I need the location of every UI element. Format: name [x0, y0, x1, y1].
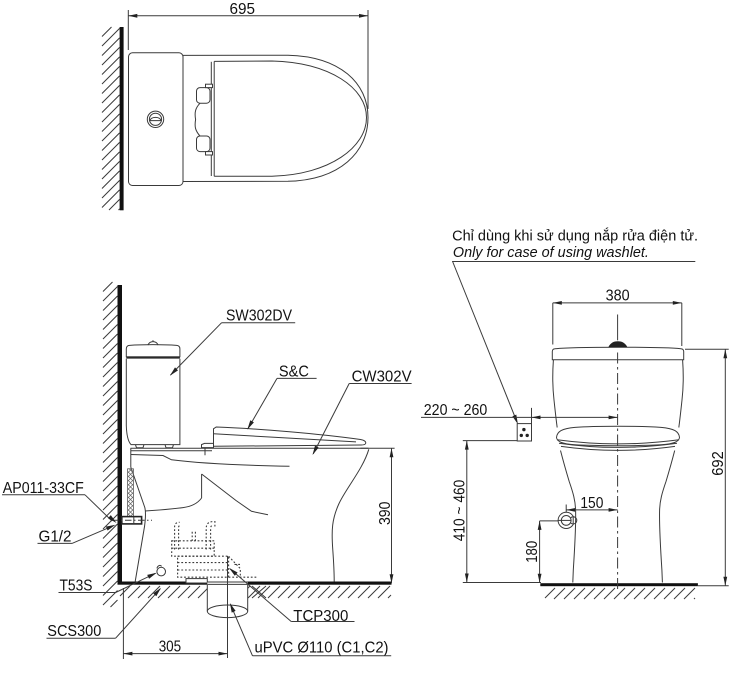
svg-text:T53S: T53S [60, 578, 93, 595]
svg-text:G1/2: G1/2 [39, 528, 72, 545]
svg-text:692: 692 [710, 451, 727, 476]
svg-text:695: 695 [230, 1, 256, 18]
svg-text:AP011-33CF: AP011-33CF [3, 480, 84, 497]
svg-text:CW302V: CW302V [352, 369, 412, 386]
svg-text:380: 380 [606, 288, 630, 305]
svg-text:180: 180 [524, 541, 541, 563]
svg-text:Chỉ dùng khi sử dụng nắp rửa đ: Chỉ dùng khi sử dụng nắp rửa điện tử. [452, 228, 698, 245]
svg-text:TCP300: TCP300 [293, 608, 348, 625]
svg-text:Only for case of using washlet: Only for case of using washlet. [453, 244, 649, 261]
svg-text:uPVC Ø110 (C1,C2): uPVC Ø110 (C1,C2) [255, 639, 389, 656]
svg-text:SCS300: SCS300 [47, 623, 101, 640]
svg-text:SW302DV: SW302DV [226, 308, 292, 325]
svg-text:305: 305 [159, 638, 182, 655]
svg-text:150: 150 [580, 495, 603, 512]
svg-text:410 ~ 460: 410 ~ 460 [451, 480, 468, 542]
svg-text:390: 390 [377, 501, 394, 525]
svg-text:S&C: S&C [279, 363, 309, 380]
svg-text:220 ~ 260: 220 ~ 260 [424, 402, 488, 419]
